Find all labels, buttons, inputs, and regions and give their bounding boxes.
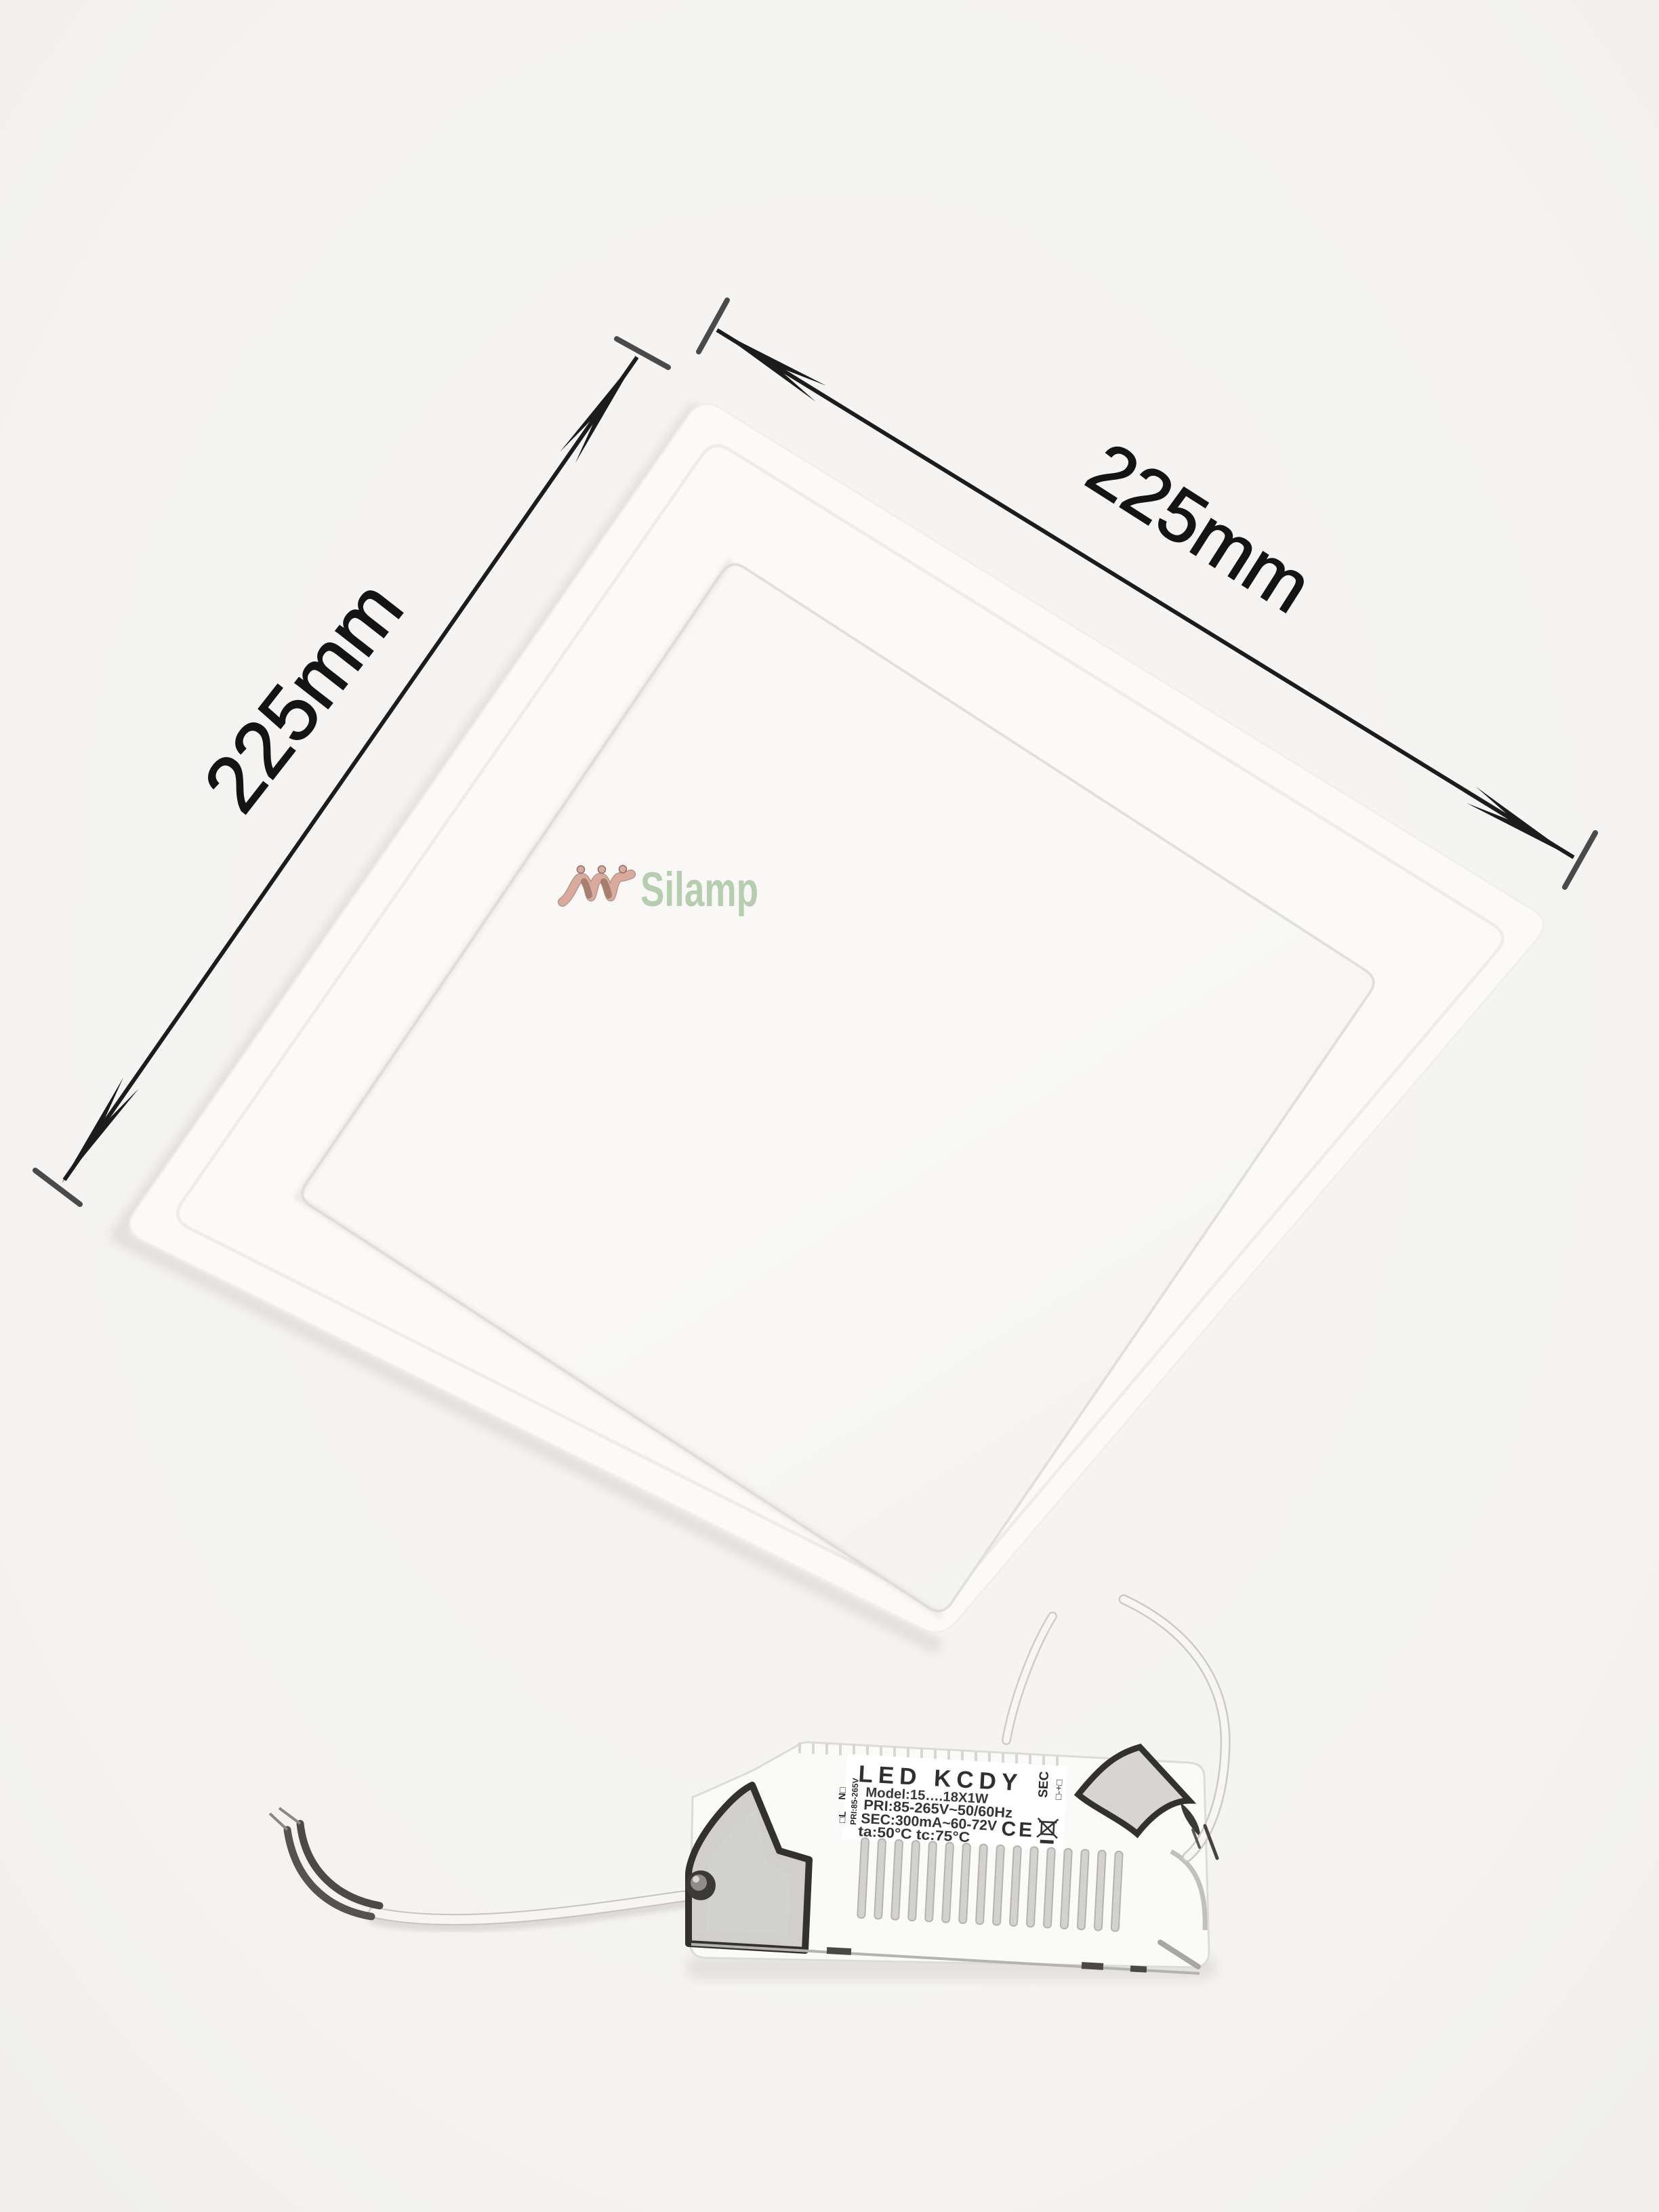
svg-text:N□: N□: [836, 1786, 848, 1800]
svg-text:SEC: SEC: [1036, 1771, 1052, 1798]
svg-text:□-+□: □-+□: [1052, 1779, 1065, 1800]
svg-text:□L: □L: [836, 1811, 848, 1823]
svg-text:CE: CE: [1001, 1818, 1036, 1842]
svg-text:Silamp: Silamp: [640, 863, 758, 917]
